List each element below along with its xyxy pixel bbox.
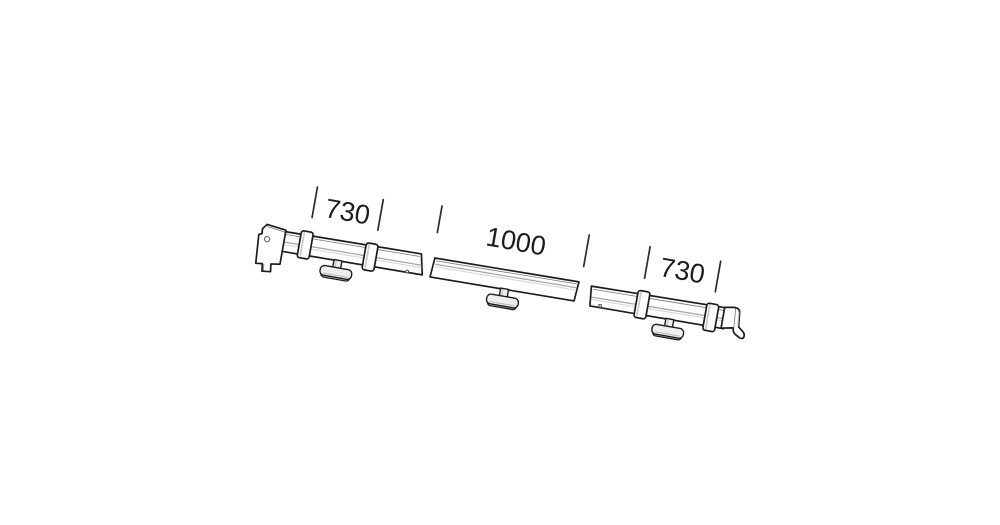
dimension-label-right: 730 bbox=[658, 252, 708, 289]
dimension-tick bbox=[437, 206, 442, 233]
assembly-group: 730 1000 730 bbox=[253, 175, 758, 355]
rail-assembly-diagram: 730 1000 730 bbox=[0, 0, 1000, 525]
dimension-tick bbox=[715, 261, 720, 292]
diagram-canvas: 730 1000 730 bbox=[0, 0, 1000, 525]
bracket-hole bbox=[264, 236, 270, 242]
segment-middle-1000 bbox=[427, 256, 579, 320]
dimension-tick bbox=[584, 235, 590, 267]
dimension-label-left: 730 bbox=[323, 193, 373, 230]
rail-screw-dot bbox=[406, 270, 409, 273]
right-end-cap bbox=[720, 306, 749, 339]
dimension-tick bbox=[645, 247, 651, 279]
rail-screw-dot bbox=[598, 304, 601, 307]
dimension-tick bbox=[378, 200, 383, 231]
segment-right-730 bbox=[585, 282, 749, 351]
segment-left-730 bbox=[253, 223, 427, 298]
dimension-label-middle: 1000 bbox=[484, 221, 548, 261]
left-end-bracket bbox=[253, 223, 287, 274]
dimension-tick bbox=[312, 187, 317, 218]
